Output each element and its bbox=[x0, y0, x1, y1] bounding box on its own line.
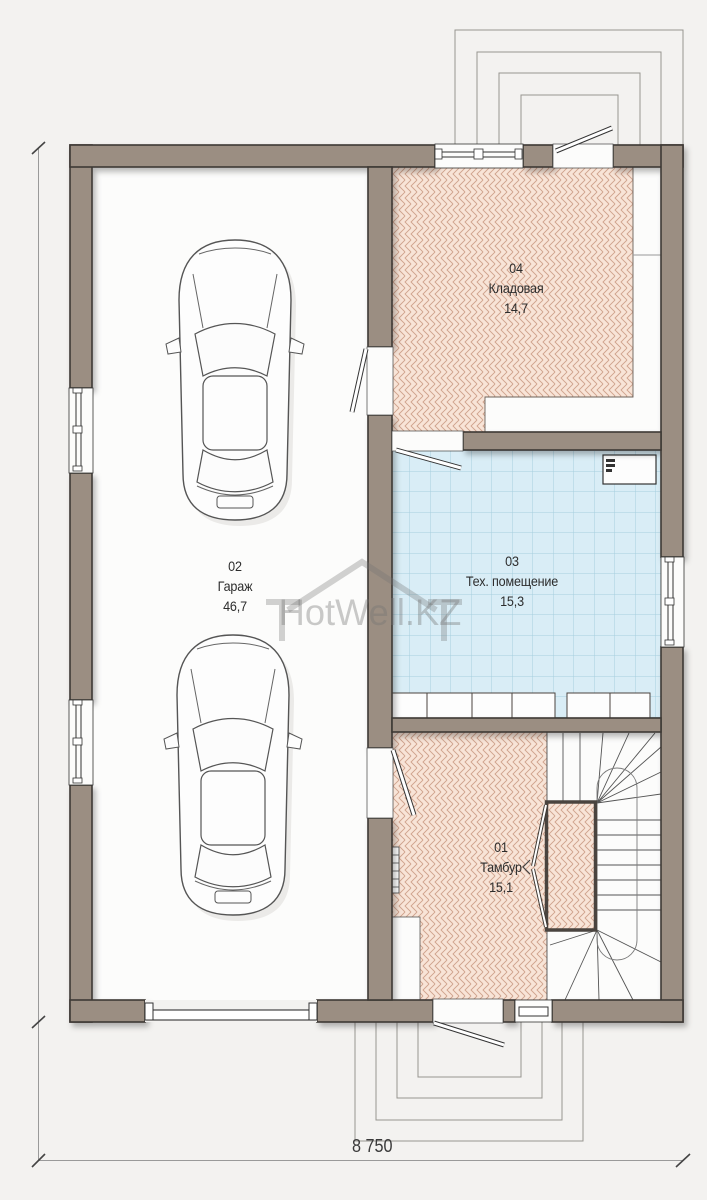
room-name: Тамбур bbox=[447, 857, 555, 877]
room-area: 15,1 bbox=[447, 877, 555, 897]
window-left-upper bbox=[69, 388, 93, 473]
room-label-tech: 03 Тех. помещение 15,3 bbox=[436, 551, 589, 611]
floor-plan-page: { "watermark": { "text": "HotWell.KZ" },… bbox=[0, 0, 707, 1200]
window-left-lower bbox=[69, 700, 93, 785]
vestibule-white-inset bbox=[392, 917, 420, 1000]
room-area: 46,7 bbox=[172, 596, 298, 616]
tech-cabinets bbox=[392, 693, 650, 718]
car-icon bbox=[166, 240, 304, 526]
room-label-garage: 02 Гараж 46,7 bbox=[172, 556, 298, 616]
room-label-storage: 04 Кладовая 14,7 bbox=[453, 258, 579, 318]
window-top bbox=[435, 144, 523, 168]
room-number: 01 bbox=[447, 837, 555, 857]
porch-steps-top bbox=[455, 30, 683, 150]
room-number: 03 bbox=[436, 551, 589, 571]
window-bottom bbox=[515, 1000, 552, 1022]
room-area: 14,7 bbox=[453, 298, 579, 318]
boiler-unit bbox=[603, 455, 656, 484]
door-top-entrance bbox=[553, 128, 613, 168]
room-name: Тех. помещение bbox=[436, 571, 589, 591]
room-number: 02 bbox=[172, 556, 298, 576]
door-bottom-entrance bbox=[433, 999, 504, 1045]
room-name: Гараж bbox=[172, 576, 298, 596]
room-area: 15,3 bbox=[436, 591, 589, 611]
room-label-vestibule: 01 Тамбур 15,1 bbox=[447, 837, 555, 897]
dimension-width-label: 8 750 bbox=[352, 1136, 442, 1157]
car-icon bbox=[164, 635, 302, 921]
garage-door bbox=[145, 1000, 317, 1022]
window-right bbox=[661, 557, 684, 647]
room-name: Кладовая bbox=[453, 278, 579, 298]
room-number: 04 bbox=[453, 258, 579, 278]
